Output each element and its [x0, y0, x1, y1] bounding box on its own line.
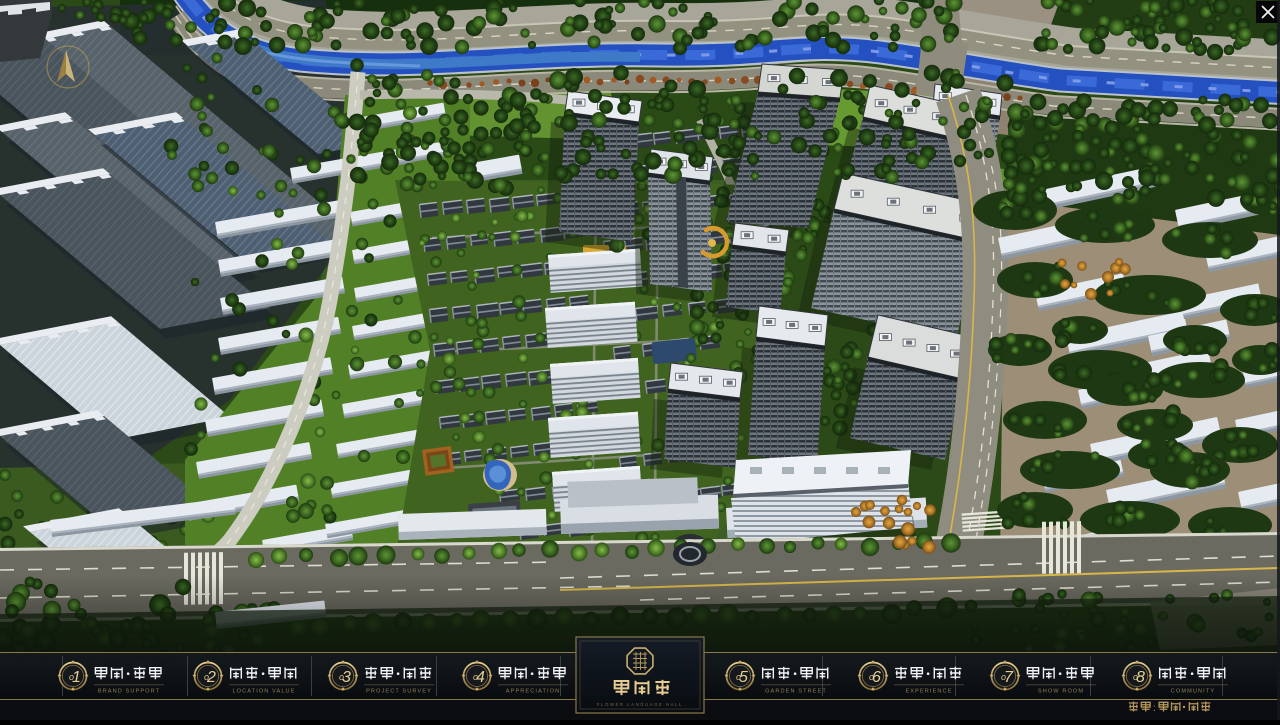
svg-text:SHOW ROOM: SHOW ROOM — [1038, 689, 1084, 695]
svg-text:PROJECT SURVEY: PROJECT SURVEY — [366, 689, 432, 695]
svg-text:2: 2 — [206, 669, 216, 686]
svg-text:LOCATION VALUE: LOCATION VALUE — [232, 689, 295, 695]
svg-text:3: 3 — [342, 669, 351, 686]
svg-text:5: 5 — [739, 669, 748, 686]
svg-text:EXPERIENCE: EXPERIENCE — [905, 689, 952, 695]
svg-text:6: 6 — [872, 669, 881, 686]
svg-text:FLOWER LANGUAGE HALL: FLOWER LANGUAGE HALL — [597, 702, 683, 707]
svg-text:1: 1 — [72, 669, 81, 686]
svg-text:BRAND SUPPORT: BRAND SUPPORT — [98, 689, 160, 695]
svg-text:APPRECIATION: APPRECIATION — [506, 689, 560, 695]
svg-text:4: 4 — [476, 669, 485, 686]
svg-text:COMMUNITY: COMMUNITY — [1171, 689, 1215, 695]
svg-text:8: 8 — [1136, 669, 1145, 686]
svg-text::: : — [1153, 703, 1156, 714]
svg-text:7: 7 — [1004, 669, 1014, 686]
svg-text:GARDEN STREET: GARDEN STREET — [765, 689, 827, 695]
